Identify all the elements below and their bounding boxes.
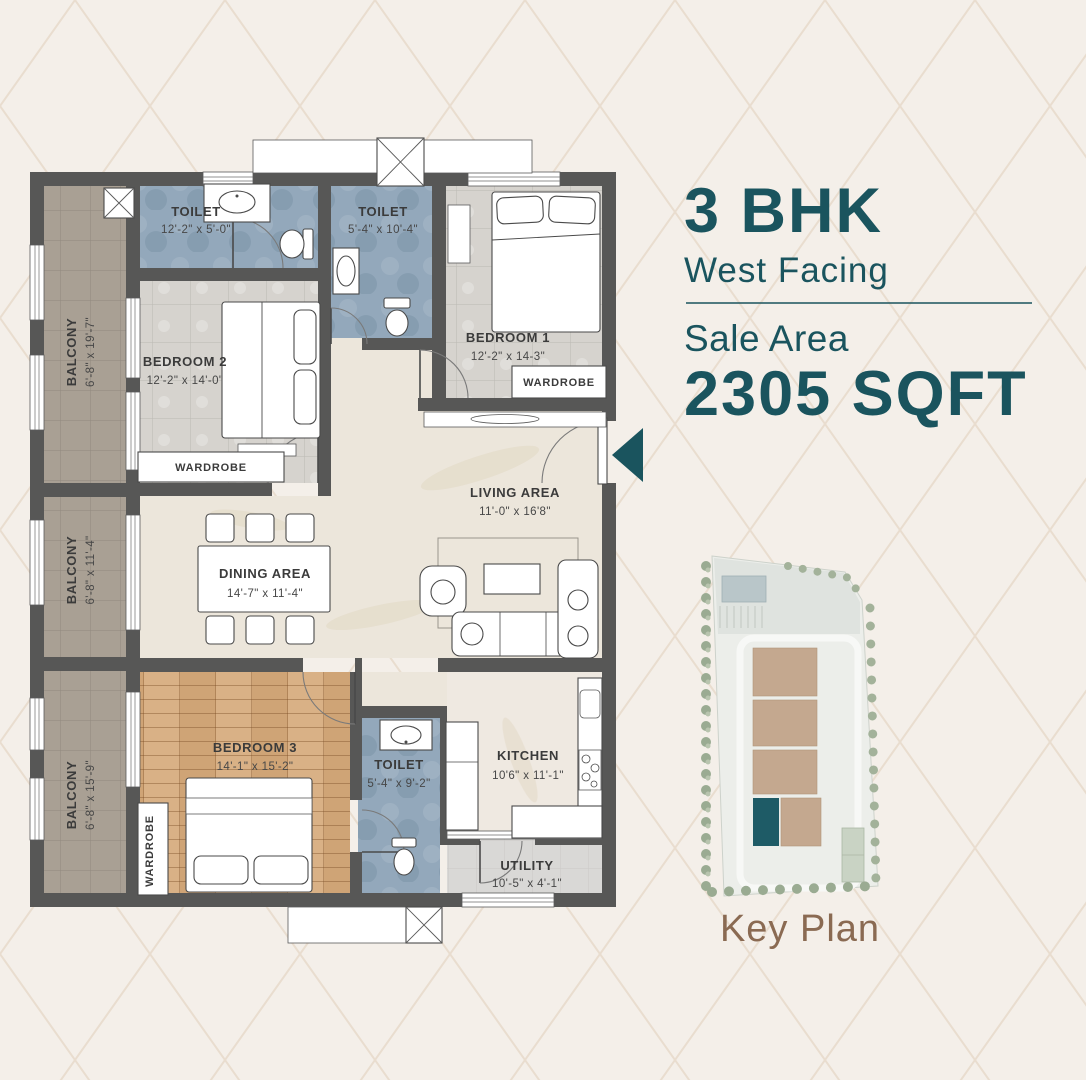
building-block (753, 700, 817, 746)
living-area-label: LIVING AREA (470, 485, 560, 500)
wc-icon (280, 229, 313, 259)
window (468, 172, 560, 186)
toilet-3-dims: 5'-4" x 9'-2" (367, 778, 430, 790)
floor-plan: WARDROBE WARDROBE WARDROBE TOILET 12'-2"… (30, 138, 643, 943)
balcony-2-dims: 6'-8" x 11'-4" (85, 535, 97, 604)
sale-area-value: 2305 SQFT (684, 359, 1028, 429)
bedroom-2-label: BEDROOM 2 (143, 354, 227, 369)
bedroom-3-dims: 14'-1" x 15'-2" (217, 761, 294, 773)
window (30, 778, 44, 840)
highlighted-unit (753, 798, 779, 846)
utility-dims: 10'-5" x 4'-1" (492, 878, 562, 890)
bed-bedroom-3 (186, 778, 312, 892)
toilet-2-dims: 5'-4" x 10'-4" (348, 224, 418, 236)
flyer-svg: WARDROBE WARDROBE WARDROBE TOILET 12'-2"… (0, 0, 1086, 1080)
dining-area-label: DINING AREA (219, 566, 311, 581)
key-plan-caption: Key Plan (720, 908, 880, 950)
window (126, 692, 140, 787)
building-block (781, 798, 821, 846)
kitchen-counter-bottom (512, 806, 602, 838)
ledge-top-right (424, 140, 532, 173)
kitchen-sink-icon (580, 690, 600, 718)
ledge-bottom (288, 907, 406, 943)
window (30, 698, 44, 750)
kitchen-dims: 10'6" x 11'-1" (492, 770, 564, 782)
tv-icon (471, 415, 539, 424)
facing-subtitle: West Facing (684, 251, 889, 290)
toilet-1-dims: 12'-2" x 5'-0" (161, 224, 231, 236)
hob-icon (579, 750, 601, 790)
coffee-table (484, 564, 540, 594)
ledge-top-left (253, 140, 377, 173)
duct-shaft-icon (377, 138, 424, 186)
balcony-1-label: BALCONY (64, 318, 79, 386)
toilet-1-label: TOILET (171, 204, 221, 219)
living-area-dims: 11'-0" x 16'8" (479, 506, 551, 518)
utility-label: UTILITY (500, 858, 553, 873)
pool (722, 576, 766, 602)
sink-icon (337, 256, 355, 286)
building-block (753, 648, 817, 696)
wc-icon (384, 298, 410, 336)
window (30, 355, 44, 430)
balcony-slider (126, 515, 140, 630)
window (30, 245, 44, 320)
window (30, 520, 44, 605)
floor-plan-flyer: WARDROBE WARDROBE WARDROBE TOILET 12'-2"… (0, 0, 1086, 1080)
bedroom-2-dims: 12'-2" x 14'-0" (147, 375, 224, 387)
wardrobe-label: WARDROBE (523, 377, 595, 389)
bedroom-1-label: BEDROOM 1 (466, 330, 550, 345)
duct-shaft-icon (104, 188, 134, 218)
wc-icon (392, 838, 416, 875)
wardrobe-bedroom-3: WARDROBE (138, 803, 168, 895)
kitchen-label: KITCHEN (497, 748, 559, 763)
balcony-1-dims: 6'-8" x 19'-7" (85, 317, 97, 387)
dining-area-dims: 14'-7" x 11'-4" (227, 588, 303, 600)
wardrobe-bedroom-1: WARDROBE (512, 366, 606, 398)
bed-bedroom-2 (222, 302, 320, 456)
sale-area-label: Sale Area (684, 318, 849, 359)
wardrobe-label: WARDROBE (175, 462, 247, 474)
balcony-3-label: BALCONY (64, 761, 79, 829)
window (462, 893, 554, 907)
balcony-3-dims: 6'-8" x 15'-9" (85, 760, 97, 830)
duct-shaft-icon (406, 907, 442, 943)
building-block (753, 750, 817, 794)
wardrobe-bedroom-2: WARDROBE (138, 452, 284, 482)
toilet-2-label: TOILET (358, 204, 408, 219)
wardrobe-label: WARDROBE (144, 815, 156, 887)
sink-icon (219, 191, 255, 213)
kitchen-cabinet (446, 722, 478, 830)
bhk-title: 3 BHK (684, 176, 883, 246)
window (126, 298, 140, 378)
toilet-3-label: TOILET (374, 757, 424, 772)
tennis-court (842, 828, 864, 882)
balcony-2-label: BALCONY (64, 536, 79, 604)
bedroom-1-dims: 12'-2" x 14-3" (471, 351, 545, 363)
bedroom-3-label: BEDROOM 3 (213, 740, 297, 755)
tv-console (424, 412, 606, 427)
